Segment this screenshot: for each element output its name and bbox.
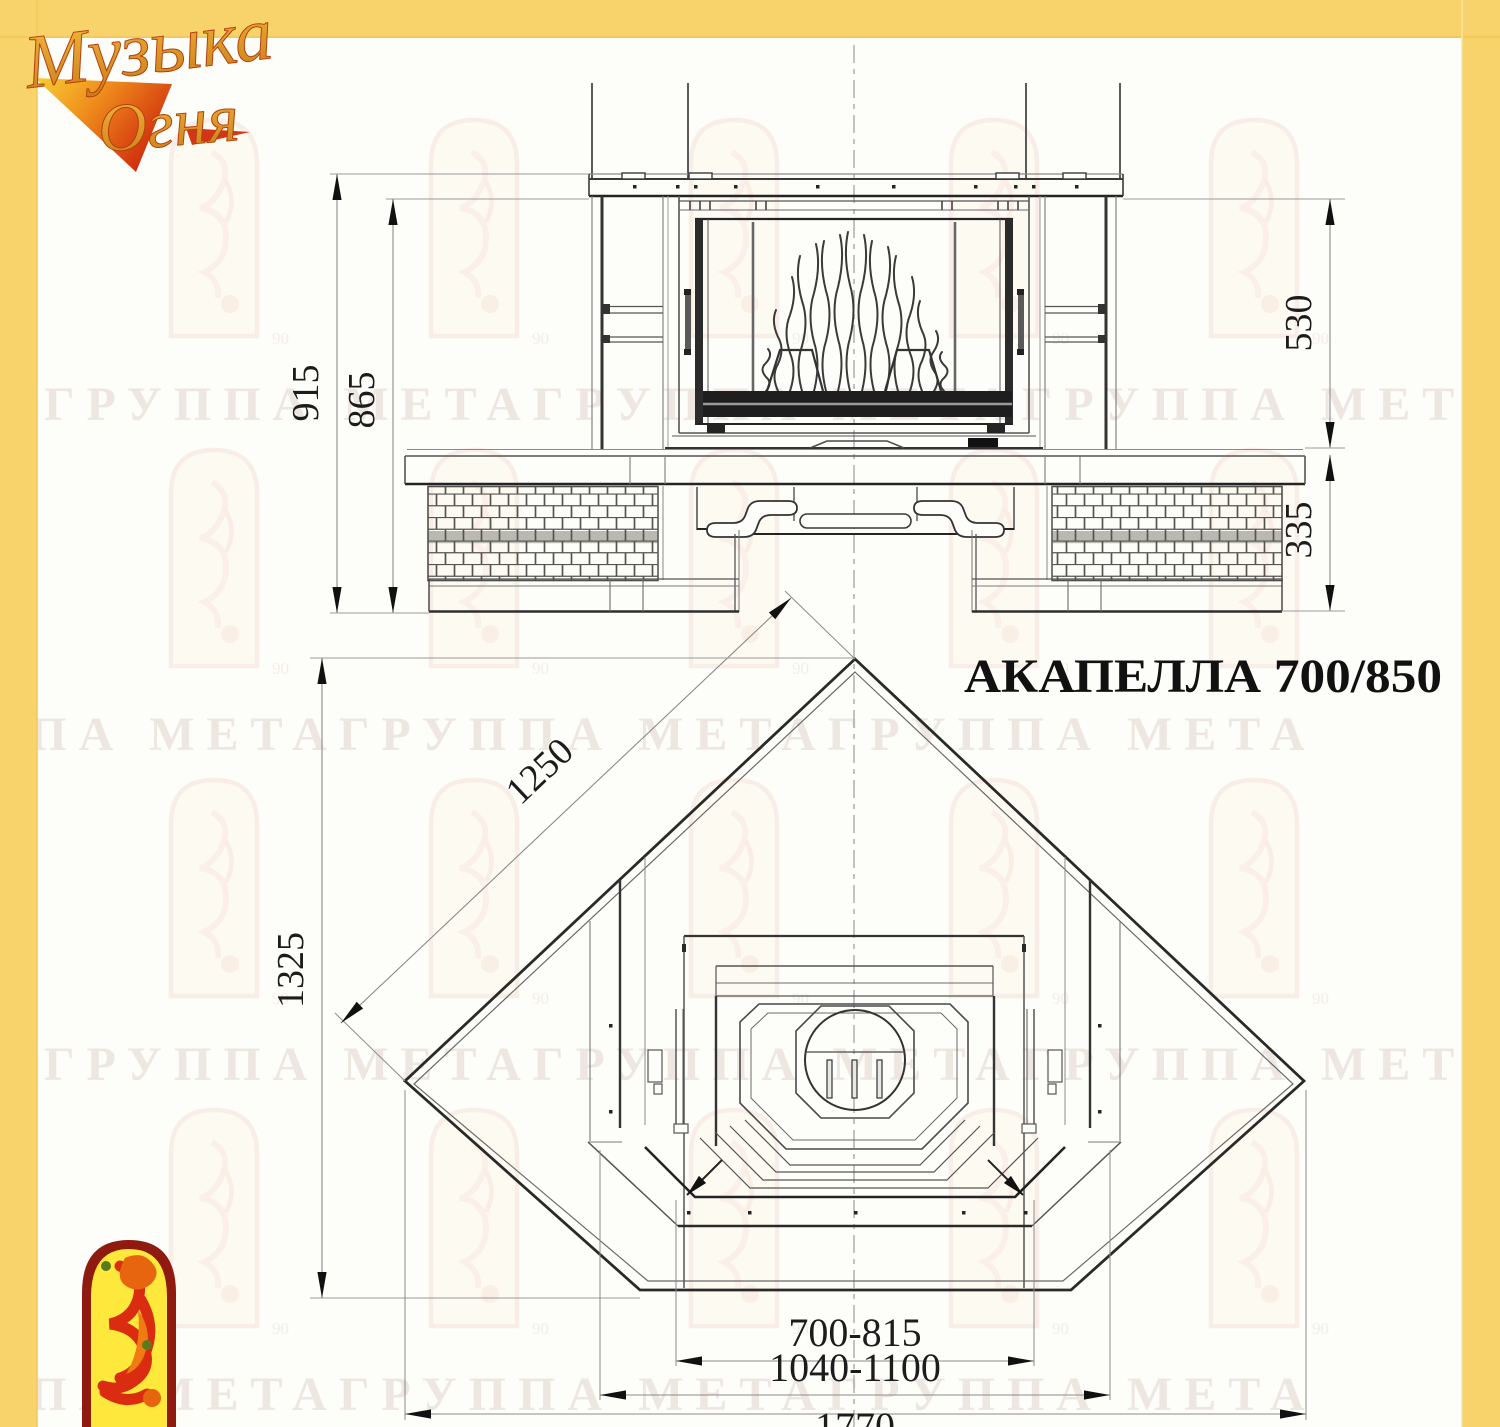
svg-text:АКАПЕЛЛА 700/850: АКАПЕЛЛА 700/850	[964, 650, 1442, 703]
svg-text:ГРУППА МЕТАГРУППА МЕТАГРУППА М: ГРУППА МЕТАГРУППА МЕТАГРУППА МЕТА	[44, 1038, 1500, 1091]
svg-text:ГРУППА МЕТАГРУППА МЕТАГРУППА М: ГРУППА МЕТАГРУППА МЕТАГРУППА МЕТА	[0, 708, 1317, 761]
svg-text:1770: 1770	[815, 1404, 895, 1427]
svg-text:915: 915	[285, 365, 327, 422]
svg-text:530: 530	[1278, 295, 1320, 352]
svg-text:Огня: Огня	[95, 79, 242, 167]
svg-text:865: 865	[341, 372, 383, 429]
svg-text:335: 335	[1278, 502, 1320, 559]
svg-text:1325: 1325	[270, 932, 312, 1008]
svg-text:1040-1100: 1040-1100	[769, 1345, 941, 1390]
